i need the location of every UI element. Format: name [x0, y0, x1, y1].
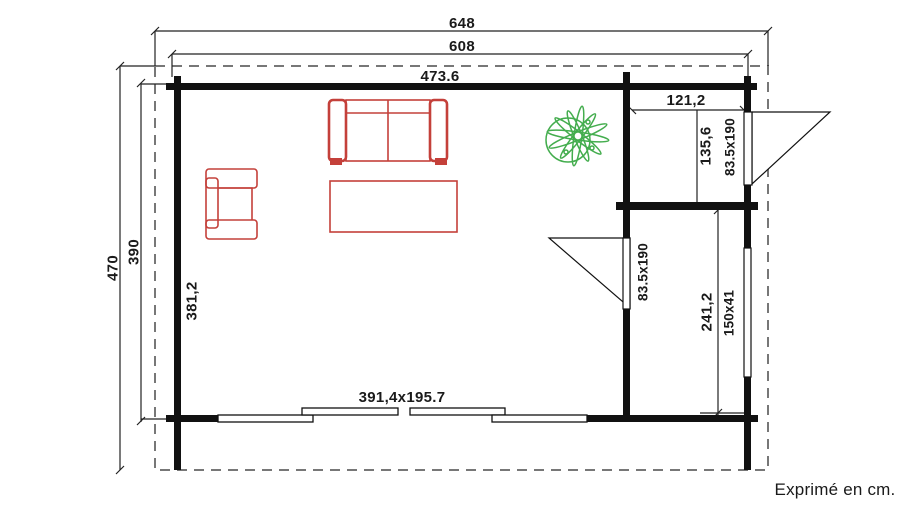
interior-door-swing: [549, 238, 630, 308]
wall-partition-horizontal: [616, 202, 758, 210]
wall-partition-vertical-lower: [623, 309, 630, 422]
interior-door-leaf: [623, 238, 630, 309]
dim-building-depth-label: 390: [126, 239, 143, 265]
sliding-door-panel-1: [218, 415, 313, 422]
floor-plan-canvas: 648 608 473.6 121,2 135,6 83.5x190 241,2…: [0, 0, 920, 515]
exterior-door-leaf: [744, 112, 752, 185]
sliding-door-panel-3: [410, 408, 505, 415]
dim-annex-width-label: 121,2: [666, 92, 705, 109]
dim-main-room-width-label: 473.6: [420, 68, 459, 85]
dim-interior-door-label: 83.5x190: [636, 243, 651, 301]
wall-bottom-left: [166, 415, 218, 422]
dim-annex-bottom-depth-label: 241,2: [699, 292, 716, 331]
dim-annex-bottom-window-label: 150x41: [722, 290, 737, 337]
dim-annex-top-door-label: 83.5x190: [723, 118, 738, 176]
dim-line-roof-depth: [120, 66, 155, 470]
dim-sliding-door-label: 391,4x195.7: [359, 389, 446, 406]
wall-partition-vertical-upper: [623, 72, 630, 238]
sliding-door-panel-2: [302, 408, 398, 415]
dim-line-building-depth: [141, 83, 174, 422]
wall-left: [174, 76, 181, 470]
wall-right-upper: [744, 76, 751, 112]
dim-main-room-depth-label: 381,2: [184, 281, 201, 320]
sofa-armrest-right: [430, 100, 447, 161]
wall-right-lower: [744, 377, 751, 470]
floor-plan: 648 608 473.6 121,2 135,6 83.5x190 241,2…: [0, 0, 920, 515]
sofa-foot-right: [435, 158, 447, 165]
coffee-table: [330, 181, 457, 232]
sofa-armrest-left: [329, 100, 346, 161]
plant: [546, 106, 609, 167]
sofa-foot-left: [330, 158, 342, 165]
right-window-leaf: [744, 248, 751, 377]
sliding-door: [218, 408, 587, 422]
sofa: [329, 100, 447, 165]
plant-leaves: [547, 106, 610, 167]
wall-top: [166, 83, 757, 90]
wall-right-mid: [744, 185, 751, 248]
sliding-door-panel-4: [492, 415, 587, 422]
unit-note: Exprimé en cm.: [775, 480, 896, 499]
dim-roof-width-label: 648: [449, 15, 475, 32]
armchair-armrest-bottom: [206, 220, 257, 239]
wall-bottom-right: [587, 415, 758, 422]
armchair: [206, 169, 257, 239]
armchair-seat: [218, 188, 252, 220]
exterior-door-swing: [752, 112, 830, 184]
dim-building-width-label: 608: [449, 38, 475, 55]
dim-roof-depth-label: 470: [105, 255, 122, 281]
dim-annex-top-depth-label: 135,6: [698, 126, 715, 165]
